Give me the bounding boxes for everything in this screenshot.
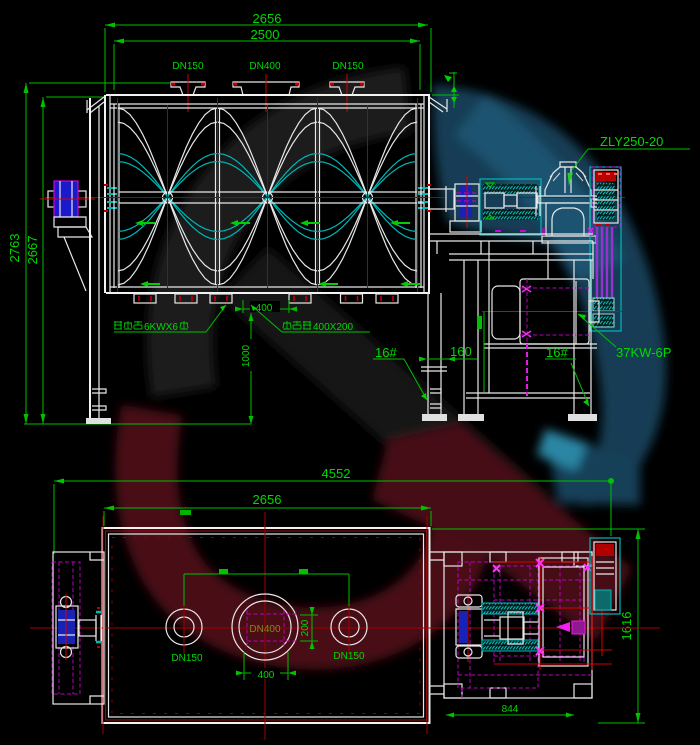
svg-text:16#: 16# (375, 345, 397, 360)
svg-text:2656: 2656 (253, 492, 282, 507)
svg-text:4552: 4552 (322, 466, 351, 481)
svg-text:DN150: DN150 (172, 61, 204, 72)
svg-text:DN400: DN400 (249, 624, 281, 635)
svg-text:2763: 2763 (7, 234, 22, 263)
svg-text:160: 160 (450, 344, 472, 359)
svg-text:400: 400 (258, 670, 275, 681)
svg-text:844: 844 (502, 704, 519, 715)
svg-text:2500: 2500 (251, 27, 280, 42)
svg-text:2656: 2656 (253, 11, 282, 26)
svg-text:1616: 1616 (619, 612, 634, 641)
svg-text:DN150: DN150 (332, 61, 364, 72)
svg-text:200: 200 (300, 619, 311, 636)
svg-text:16#: 16# (546, 345, 568, 360)
svg-text:DN150: DN150 (333, 651, 365, 662)
svg-text:37KW-6P: 37KW-6P (616, 345, 671, 360)
svg-text:6KWX6: 6KWX6 (144, 322, 178, 333)
svg-text:2667: 2667 (25, 236, 40, 265)
svg-text:ZLY250-20: ZLY250-20 (600, 134, 663, 149)
svg-text:400X200: 400X200 (313, 322, 353, 333)
svg-text:1000: 1000 (241, 344, 252, 367)
svg-text:DN400: DN400 (249, 61, 281, 72)
svg-text:DN150: DN150 (171, 653, 203, 664)
svg-text:400: 400 (256, 303, 273, 314)
